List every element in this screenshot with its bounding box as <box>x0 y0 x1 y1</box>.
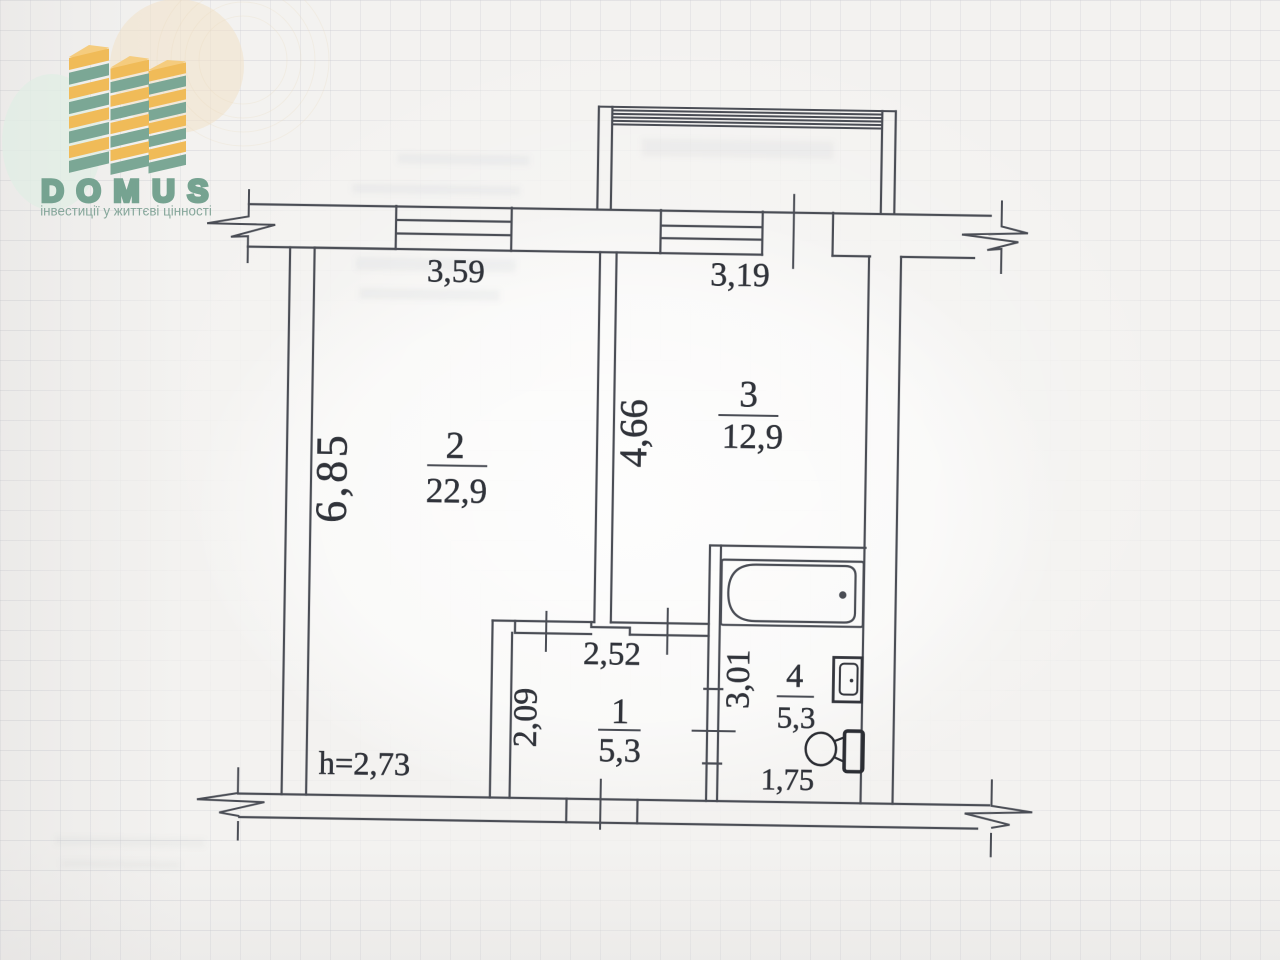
svg-text:1: 1 <box>611 691 630 731</box>
svg-text:2,09: 2,09 <box>507 688 545 748</box>
svg-text:3: 3 <box>739 374 758 415</box>
svg-text:2: 2 <box>445 425 465 467</box>
svg-text:3,59: 3,59 <box>427 253 485 290</box>
svg-text:3,19: 3,19 <box>710 256 770 294</box>
svg-text:2,52: 2,52 <box>583 636 641 673</box>
svg-text:3,01: 3,01 <box>719 649 757 709</box>
svg-text:12,9: 12,9 <box>722 416 784 456</box>
svg-text:5,3: 5,3 <box>598 732 641 770</box>
svg-text:h=2,73: h=2,73 <box>318 746 410 783</box>
svg-text:4,66: 4,66 <box>612 399 656 468</box>
svg-text:1,75: 1,75 <box>761 762 815 797</box>
svg-text:22,9: 22,9 <box>426 471 488 511</box>
svg-text:5,3: 5,3 <box>776 699 815 735</box>
svg-text:4: 4 <box>786 657 804 694</box>
svg-text:інвестиції у життєві цінності: інвестиції у життєві цінності <box>40 204 212 219</box>
svg-text:6,85: 6,85 <box>306 431 356 523</box>
